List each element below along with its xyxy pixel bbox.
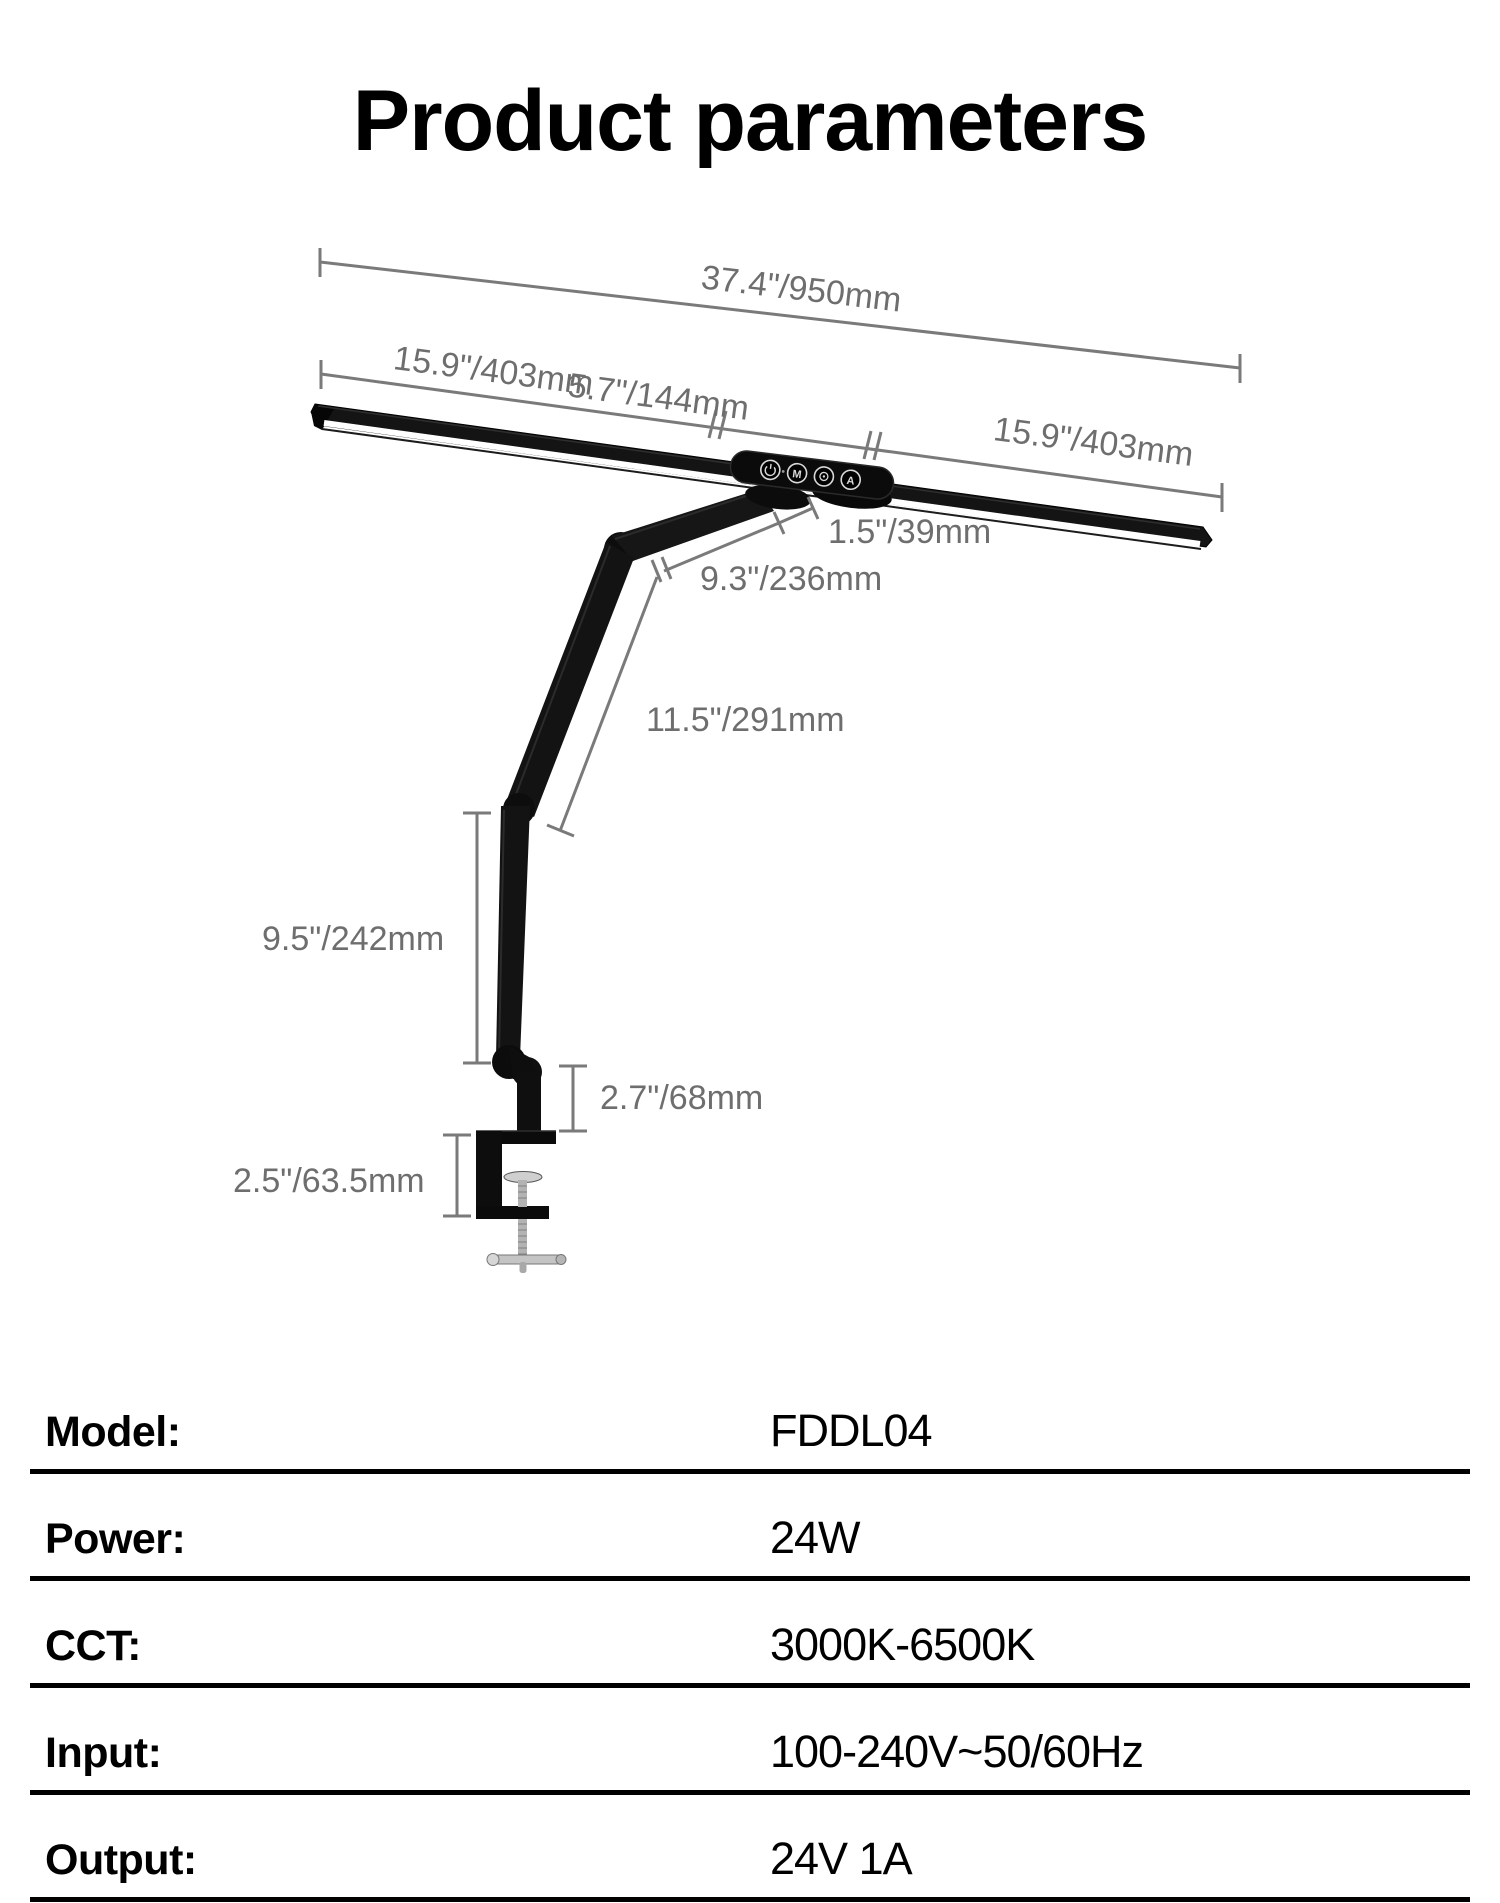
spec-value: FDDL04	[770, 1405, 932, 1457]
upper-arm	[503, 542, 634, 825]
svg-text:M: M	[792, 468, 803, 481]
spec-value: 3000K-6500K	[770, 1619, 1034, 1671]
spec-value: 24W	[770, 1512, 860, 1564]
lamp-dimension-diagram: M A	[0, 0, 1500, 1365]
spec-table: Model: FDDL04 Power: 24W CCT: 3000K-6500…	[30, 1367, 1470, 1902]
desk-clamp	[476, 1131, 566, 1273]
dim-label-clamp: 2.5"/63.5mm	[233, 1162, 425, 1200]
table-row-cct: CCT: 3000K-6500K	[30, 1581, 1470, 1688]
dim-label-head-arm: 9.3"/236mm	[700, 560, 882, 598]
table-row-power: Power: 24W	[30, 1474, 1470, 1581]
clamp-handle	[487, 1254, 566, 1274]
dim-label-riser: 2.7"/68mm	[600, 1079, 763, 1117]
table-row-input: Input: 100-240V~50/60Hz	[30, 1688, 1470, 1795]
dim-label-lower-arm: 9.5"/242mm	[262, 920, 444, 958]
product-parameters-page: { "title": "Product parameters", "colors…	[0, 0, 1500, 1903]
table-row-model: Model: FDDL04	[30, 1367, 1470, 1474]
dim-line-head-offset	[779, 508, 813, 523]
lower-arm	[492, 806, 542, 1087]
dim-label-head-offset: 1.5"/39mm	[828, 513, 991, 551]
clamp-screw	[518, 1180, 527, 1259]
spec-label: Power:	[30, 1515, 770, 1564]
svg-text:A: A	[846, 475, 855, 488]
spec-label: Output:	[30, 1836, 770, 1885]
dim-label-right-bar: 15.9"/403mm	[991, 410, 1195, 474]
desk-lamp-illustration: M A	[311, 404, 1212, 1273]
table-row-output: Output: 24V 1A	[30, 1795, 1470, 1902]
dim-label-upper-arm: 11.5"/291mm	[646, 701, 845, 739]
spec-label: Input:	[30, 1729, 770, 1778]
dim-label-left-bar: 15.9"/403mm	[391, 339, 595, 403]
spec-label: CCT:	[30, 1622, 770, 1671]
spec-value: 24V 1A	[770, 1833, 912, 1885]
riser-post	[517, 1072, 541, 1136]
spec-label: Model:	[30, 1408, 770, 1457]
spec-value: 100-240V~50/60Hz	[770, 1726, 1143, 1778]
dimension-labels: 37.4"/950mm 15.9"/403mm 5.7"/144mm 15.9"…	[233, 258, 1196, 1200]
